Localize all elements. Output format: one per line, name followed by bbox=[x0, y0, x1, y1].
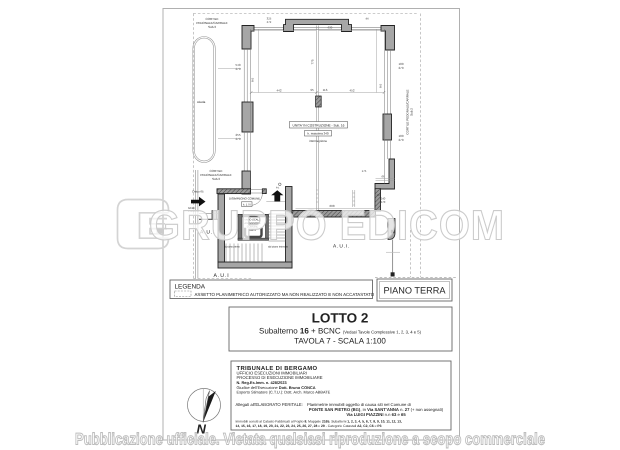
svg-text:Via LUIGI PIAZZINI n.n 63 e 65: Via LUIGI PIAZZINI n.n 63 e 65 bbox=[346, 412, 406, 417]
svg-text:Esperto Stimatore (C.T.U.): Do: Esperto Stimatore (C.T.U.): Dott. Arch. … bbox=[237, 390, 331, 395]
svg-text:interna piena: interna piena bbox=[309, 139, 327, 143]
svg-text:28: 28 bbox=[376, 193, 380, 197]
svg-text:LEGENDA: LEGENDA bbox=[175, 283, 206, 290]
svg-text:270: 270 bbox=[398, 138, 403, 142]
svg-text:LOTTO 2: LOTTO 2 bbox=[312, 311, 369, 326]
svg-text:UNITA' IN COSTRUZIONE - Sub. 1: UNITA' IN COSTRUZIONE - Sub. 16 bbox=[293, 123, 345, 127]
svg-text:h. massima 340: h. massima 340 bbox=[307, 132, 329, 136]
svg-text:Immobili censiti al Catasto Fa: Immobili censiti al Catasto Fabbricati a… bbox=[236, 419, 402, 423]
svg-text:ASSETTO PLANIMETRICO AUTORIZZA: ASSETTO PLANIMETRICO AUTORIZZATO MA NON … bbox=[195, 292, 375, 297]
svg-text:775: 775 bbox=[311, 59, 315, 64]
svg-text:DISIMPEGNO COMUNE: DISIMPEGNO COMUNE bbox=[229, 197, 260, 201]
svg-text:Allegati all'ELABORATO PERITAL: Allegati all'ELABORATO PERITALE: bbox=[236, 402, 303, 407]
svg-text:44: 44 bbox=[365, 17, 369, 21]
svg-text:905: 905 bbox=[380, 83, 383, 88]
svg-text:A.U.I: A.U.I bbox=[214, 273, 230, 279]
svg-text:272: 272 bbox=[267, 20, 272, 24]
svg-text:95: 95 bbox=[310, 88, 314, 92]
svg-text:175: 175 bbox=[362, 169, 367, 173]
svg-text:Civico 65: Civico 65 bbox=[192, 189, 204, 193]
svg-text:452: 452 bbox=[349, 88, 354, 92]
svg-text:905: 905 bbox=[252, 77, 255, 82]
svg-text:Sub.3: Sub.3 bbox=[208, 25, 216, 29]
svg-text:TAVOLA 7 - SCALA 1:100: TAVOLA 7 - SCALA 1:100 bbox=[294, 337, 386, 346]
svg-text:Aiuola: Aiuola bbox=[197, 100, 206, 104]
svg-text:Sub.2: Sub.2 bbox=[410, 108, 414, 116]
svg-text:442: 442 bbox=[276, 88, 281, 92]
svg-text:Sub.3: Sub.3 bbox=[212, 177, 220, 181]
svg-text:PIANO TERRA: PIANO TERRA bbox=[383, 286, 446, 296]
svg-text:Pubblicazione ufficiale. Vieta: Pubblicazione ufficiale. Vietata qualsia… bbox=[75, 431, 545, 449]
svg-text:270: 270 bbox=[235, 67, 240, 71]
svg-text:116: 116 bbox=[323, 88, 328, 92]
svg-text:GRUPPO EDICOM: GRUPPO EDICOM bbox=[149, 202, 505, 249]
svg-text:14, 15, 16, 17, 18, 19, 20, 21: 14, 15, 16, 17, 18, 19, 20, 21, 22, 23, … bbox=[236, 424, 382, 428]
svg-text:270: 270 bbox=[398, 66, 403, 70]
svg-text:66: 66 bbox=[381, 175, 385, 179]
svg-text:270: 270 bbox=[235, 137, 240, 141]
